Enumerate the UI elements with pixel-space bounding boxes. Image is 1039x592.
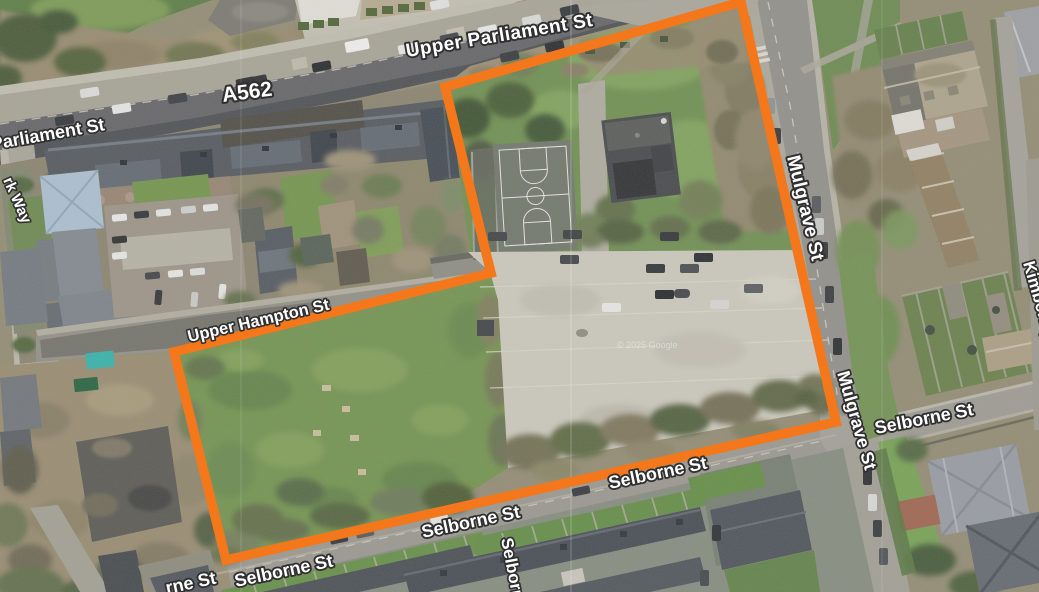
svg-text:© 2025 Google: © 2025 Google — [617, 340, 678, 350]
